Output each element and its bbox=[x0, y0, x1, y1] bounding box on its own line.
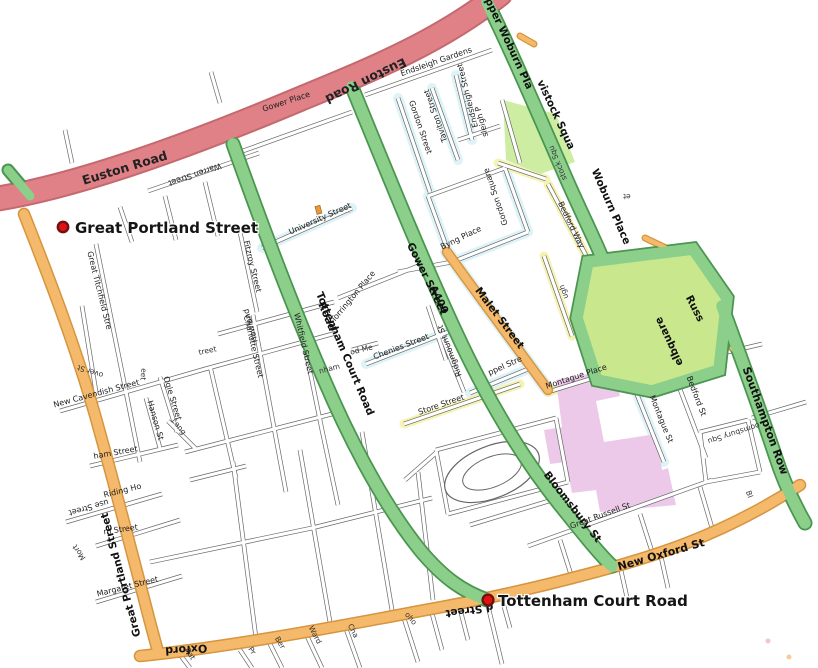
street-label-eet-frag: eet bbox=[138, 368, 148, 381]
great-portland-street-station-label: Great Portland Street bbox=[75, 219, 258, 237]
map-svg: Euston Road Euston Road pper Woburn Pla … bbox=[0, 0, 818, 668]
road-label-new-oxford-st: New Oxford St bbox=[616, 536, 706, 573]
street-label-treet-frag: treet bbox=[198, 344, 218, 357]
street-label-od-me-frag: od Me bbox=[349, 342, 374, 356]
road-label-malet-street: Malet Street bbox=[472, 285, 526, 351]
great-portland-street-station-dot[interactable] bbox=[58, 222, 68, 232]
road-label-upper-woburn-place: pper Woburn Pla bbox=[482, 0, 535, 91]
poi-small-red-label: ···· bbox=[345, 211, 351, 216]
building-marker-icon bbox=[315, 205, 322, 214]
tottenham-court-road-station-dot[interactable] bbox=[483, 595, 494, 606]
street-label-bl-frag: Bl bbox=[744, 489, 755, 499]
tottenham-court-road-station-label: Tottenham Court Road bbox=[498, 592, 688, 610]
street-label-warren-street: Warren Street bbox=[167, 161, 222, 188]
street-label-et-frag: et bbox=[623, 192, 631, 201]
street-label-hanson-st: Hanson St bbox=[145, 399, 165, 441]
map-speck bbox=[766, 639, 771, 644]
street-label-mort-frag: Mort bbox=[70, 543, 87, 562]
street-map-canvas[interactable]: Euston Road Euston Road pper Woburn Pla … bbox=[0, 0, 818, 668]
map-speck bbox=[787, 655, 792, 660]
street-label-torrington-place: Torrington Place bbox=[328, 269, 377, 325]
